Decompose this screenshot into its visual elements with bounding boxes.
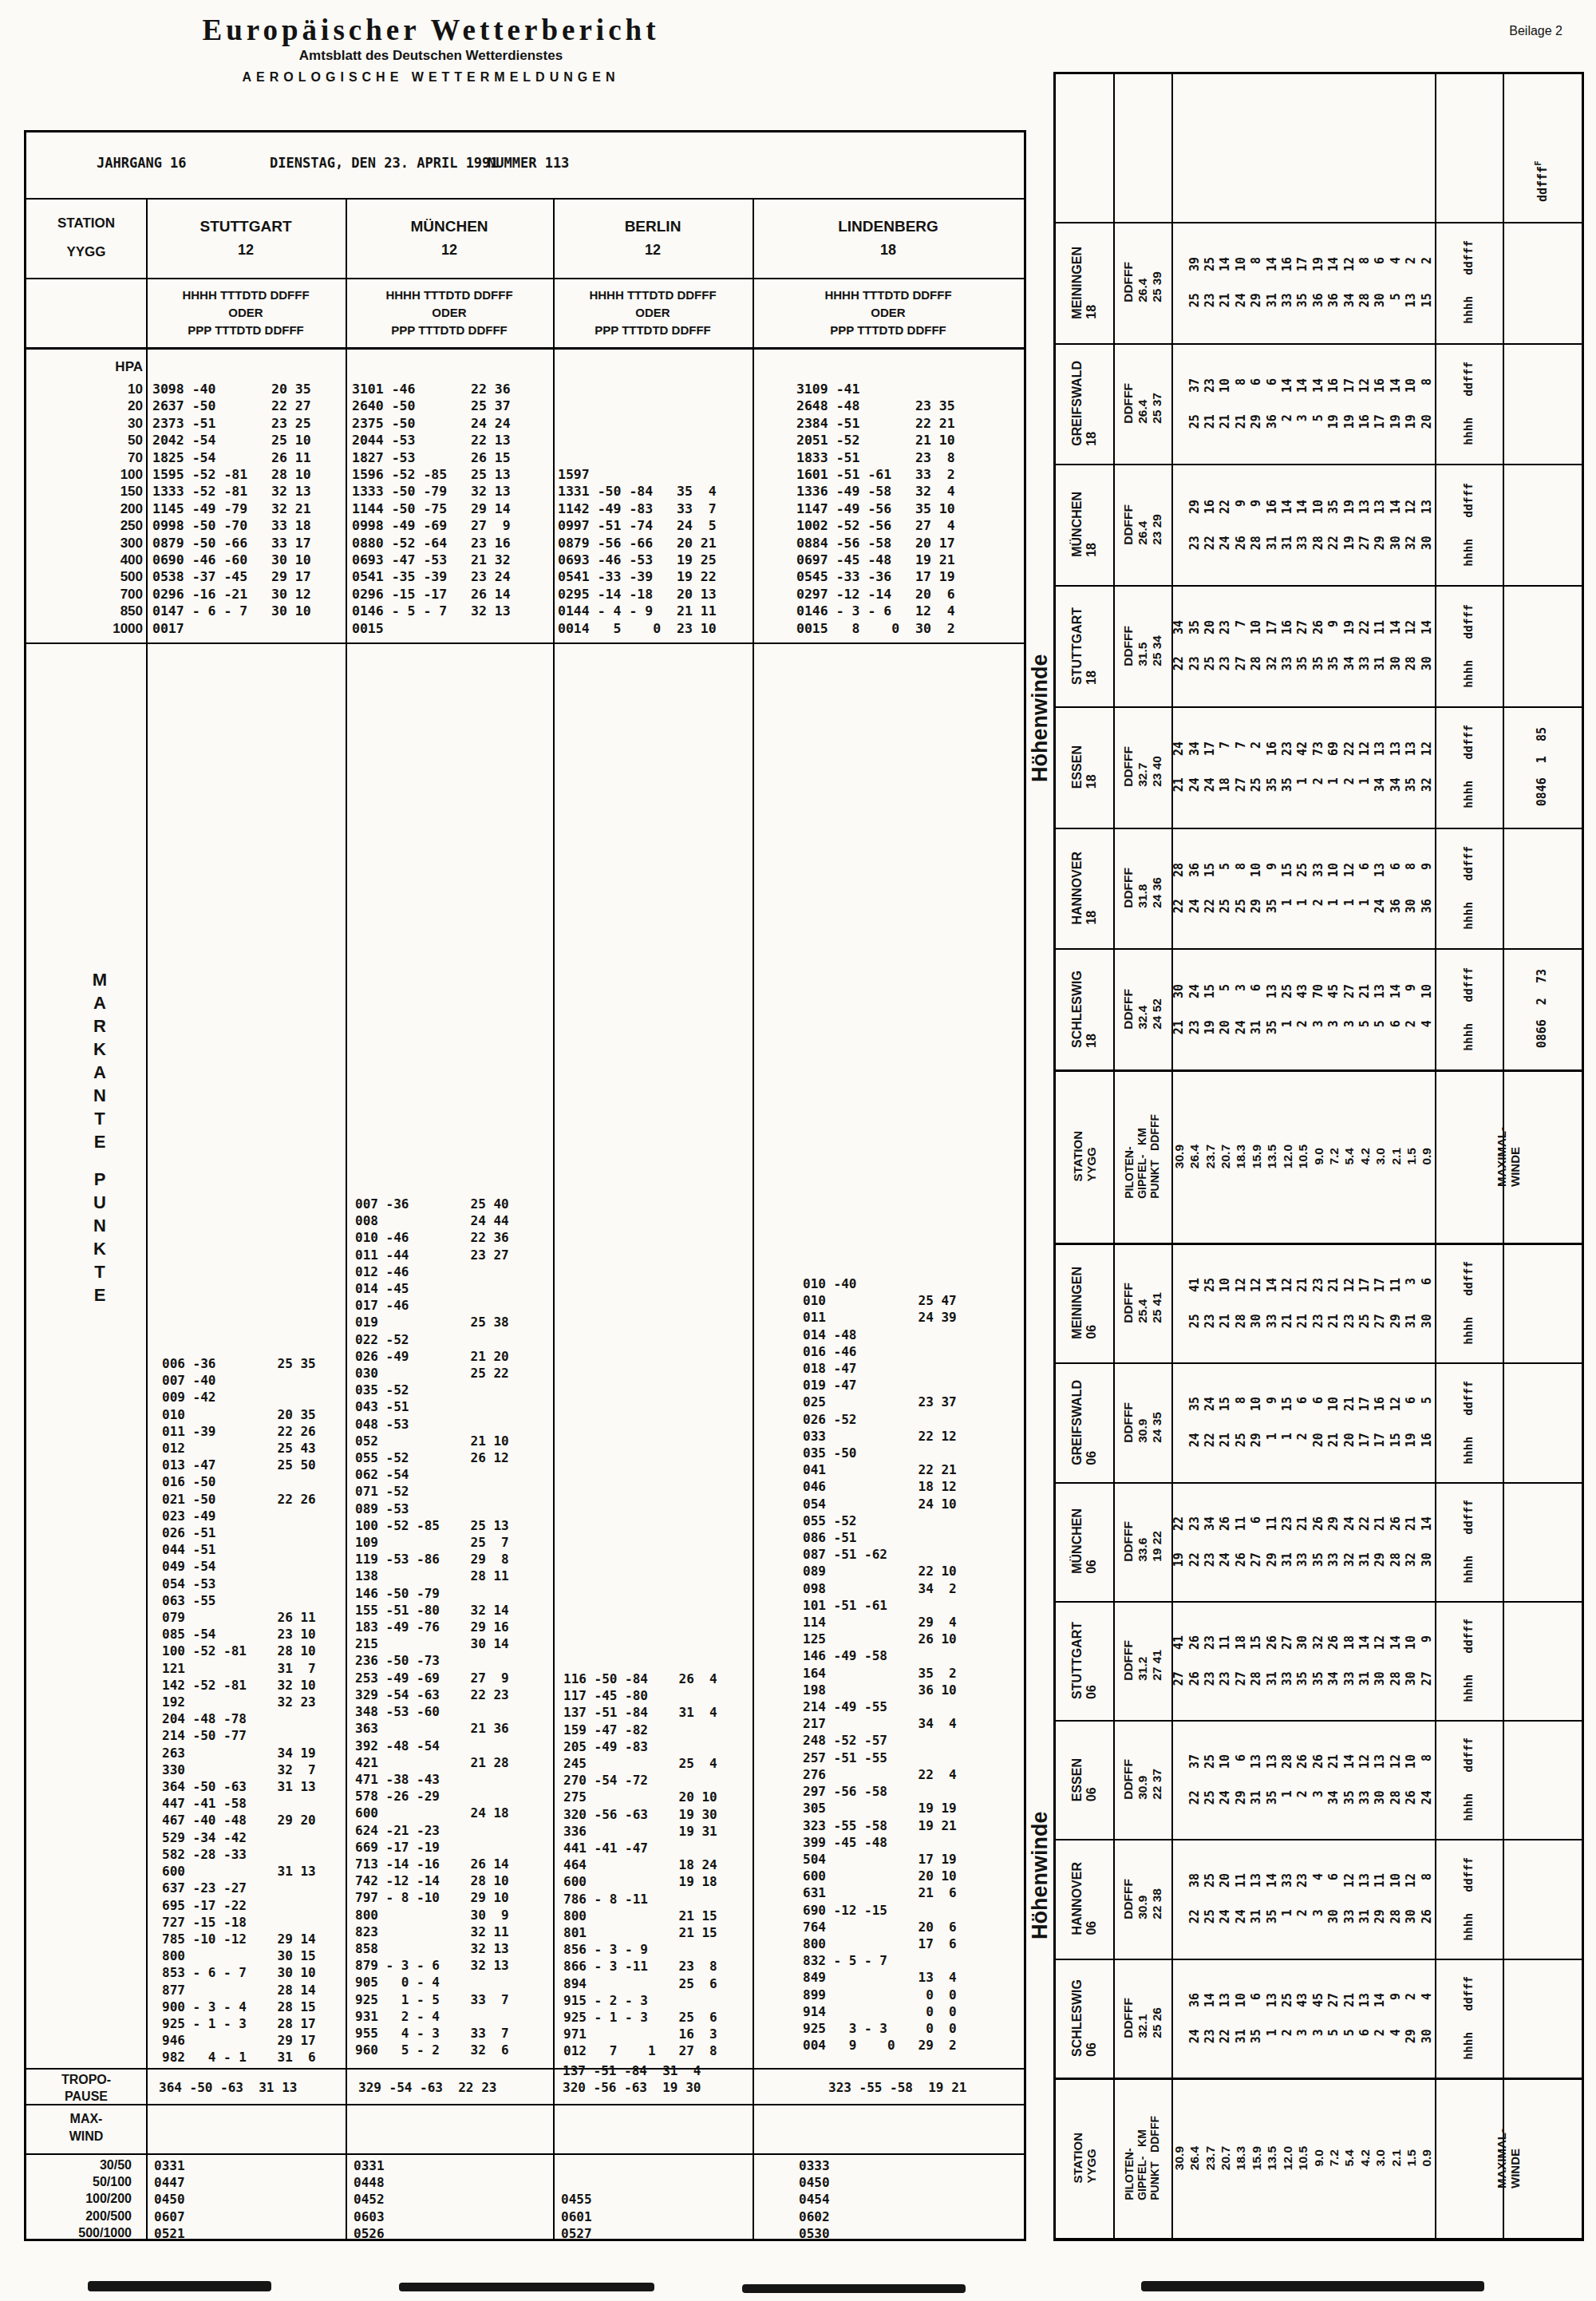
- max-wind-data-stuttgart: 0331 0447 0450 0607 0521: [154, 2157, 185, 2242]
- wind-pair-value: 25 8: [1235, 863, 1248, 913]
- hoehenwinde-label-top: Höhenwinde: [1028, 591, 1053, 782]
- wind-pair-value: 3 27: [1343, 984, 1357, 1034]
- wind-pair-value: 16 12: [1358, 378, 1372, 429]
- km-slot: 30.9: [1171, 2078, 1187, 2239]
- max-wind-label-line: MAX-: [26, 2110, 146, 2128]
- wind-pair-value: 21 8: [1235, 378, 1248, 429]
- wind-pair-slot: 2 23: [1295, 1839, 1310, 1958]
- wind-pair-value: 33 12: [1343, 1873, 1357, 1923]
- wind-pair-value: 2 33: [1312, 863, 1325, 913]
- markante-letter: N: [84, 1216, 116, 1239]
- wind-pair-value: 26 8: [1420, 1873, 1434, 1923]
- wind-pair-value: 31 23: [1281, 1516, 1294, 1567]
- wind-pair-value: 30 14: [1389, 620, 1403, 670]
- wind-pair-slot: 31 14: [1264, 222, 1279, 343]
- wind-pair-value: 26 10: [1404, 1754, 1418, 1805]
- column-header-line: HHHH TTTDTD DDFFF: [385, 287, 512, 304]
- table-rule: [346, 198, 347, 2239]
- wind-pair-slot: 34 26: [1326, 1601, 1341, 1720]
- wind-pairs-schleswig-06: 24 3623 1422 1331 1035 6 1 13 2 25 3 43 …: [1171, 1959, 1435, 2078]
- wind-station-label: STUTTGART06: [1070, 1622, 1100, 1699]
- wind-pair-value: 25 17: [1358, 1278, 1372, 1328]
- wind-pair-value: 24 8: [1420, 1754, 1434, 1805]
- table-rule: [26, 642, 1024, 644]
- wind-pair-slot: 3 45: [1311, 1959, 1326, 2078]
- wind-pair-value: 31 13: [1250, 1873, 1263, 1923]
- wind-pair-slot: 32 24: [1342, 1482, 1357, 1601]
- wind-pair-value: 36 6: [1389, 863, 1403, 913]
- station-name-lindenberg: LINDENBERG18: [753, 198, 1024, 278]
- wind-pair-slot: 23 23: [1218, 585, 1233, 706]
- wind-pair-slot: 24 36: [1187, 828, 1202, 949]
- wind-pair-slot: 31 6: [1249, 948, 1264, 1069]
- wind-pair-value: 30 13: [1420, 500, 1434, 550]
- station-yygg: 12: [441, 242, 457, 259]
- wind-pair-value: 34 19: [1343, 620, 1357, 670]
- wind-pair-slot: 21 21: [1326, 1243, 1341, 1362]
- wind-pair-value: 21 21: [1327, 1278, 1341, 1328]
- wind-pair-slot: 15 2: [1420, 222, 1435, 343]
- column-header-line: ODER: [635, 304, 670, 322]
- wind-pair-slot: 25 2: [1249, 706, 1264, 828]
- wind-pair-slot: 1 15: [1280, 1362, 1295, 1481]
- wind-pair-slot: 33 29: [1326, 1482, 1341, 1601]
- station-name-mnchen: MÜNCHEN12: [346, 198, 553, 278]
- wind-pair-value: 34 13: [1373, 741, 1387, 792]
- wind-station-label-line: HANNOVER: [1070, 1862, 1084, 1935]
- wind-pair-slot: 2 22: [1342, 706, 1357, 828]
- scan-smudge: [1141, 2281, 1484, 2291]
- wind-pair-slot: 6 13: [1357, 1959, 1373, 2078]
- weather-bulletin-page: Europäischer Wetterbericht Amtsblatt des…: [0, 0, 1596, 2301]
- wind-pair-value: 30 12: [1250, 1278, 1263, 1328]
- wind-pair-slot: 31 14: [1280, 464, 1295, 585]
- wind-pair-value: 35 13: [1266, 1754, 1279, 1805]
- km-slot: 30.9: [1171, 1069, 1187, 1243]
- wind-ddfff-header-line: 24 36: [1149, 868, 1163, 908]
- wind-pair-slot: 30 12: [1373, 1601, 1388, 1720]
- wind-ddfff-header-line: 27 41: [1149, 1640, 1163, 1681]
- wind-pair-value: 17 17: [1358, 1397, 1372, 1447]
- wind-pair-value: 19 22: [1172, 1516, 1186, 1567]
- wind-pair-slot: 35 13: [1404, 706, 1419, 828]
- wind-pair-slot: 24 11: [1234, 1839, 1249, 1958]
- wind-pair-value: 1 9: [1266, 1397, 1279, 1447]
- wind-ddfff-header: DDFFF26.425 39: [1121, 262, 1163, 302]
- wind-pair-value: 22 13: [1219, 1993, 1232, 2043]
- wind-pair-value: 28 12: [1389, 1754, 1403, 1805]
- wind-pair-value: 2 43: [1296, 984, 1310, 1034]
- section-label: AEROLOGISCHE WETTERMELDUNGEN: [0, 70, 862, 85]
- wind-pair-value: 20 6: [1312, 1397, 1325, 1447]
- wind-pair-value: 1 10: [1327, 863, 1341, 913]
- km-value: 0.9: [1420, 2149, 1434, 2167]
- wind-ddfff-essen-18: DDFFF32.723 40: [1113, 706, 1171, 828]
- hhhh-ddfff-label: hhhh ddfff: [1462, 1261, 1476, 1345]
- wind-pair-slot: 31 3: [1404, 1243, 1419, 1362]
- wind-pair-slot: 2 9: [1404, 948, 1419, 1069]
- max-wind-data-mnchen: 0331 0448 0452 0603 0526: [354, 2157, 385, 2242]
- wind-pair-slot: 31 22: [1357, 1482, 1373, 1601]
- km-slot: 18.3: [1234, 1069, 1249, 1243]
- wind-pair-slot: 22 13: [1218, 1959, 1233, 2078]
- wind-pair-value: 35 17: [1296, 257, 1310, 307]
- wind-pair-slot: 26 10: [1404, 1720, 1419, 1839]
- wind-station-stuttgart-18: STUTTGART18: [1056, 585, 1113, 706]
- wind-station-label-line: 18: [1084, 361, 1099, 446]
- wind-ddfff-header-line: 30.9: [1136, 1759, 1150, 1800]
- wind-pair-slot: 1 25: [1280, 948, 1295, 1069]
- wind-pair-value: 29 8: [1250, 257, 1263, 307]
- wind-pair-value: 5 27: [1327, 1993, 1341, 2043]
- wind-pair-value: 21 10: [1327, 1397, 1341, 1447]
- wind-pair-value: 25 41: [1188, 1278, 1202, 1328]
- tropopause-label: TROPO-PAUSE: [26, 2071, 146, 2105]
- km-value: 23.7: [1203, 1145, 1218, 1168]
- wind-pair-slot: 36 6: [1389, 828, 1404, 949]
- wind-station-label: GREIFSWALD18: [1070, 361, 1100, 446]
- wind-pair-value: 29 2: [1404, 1993, 1418, 2043]
- wind-pair-slot: 3 27: [1342, 948, 1357, 1069]
- wind-pair-slot: 33 22: [1357, 585, 1373, 706]
- wind-collabels-greifswald-06: hhhh ddfff: [1435, 1362, 1503, 1481]
- wind-ddfff-greifswald-06: DDFFF30.924 35: [1113, 1362, 1171, 1481]
- wind-pair-slot: 31 16: [1264, 464, 1279, 585]
- wind-pair-value: 19 14: [1389, 378, 1403, 429]
- wind-pair-slot: 31 10: [1234, 1959, 1249, 2078]
- wind-pair-value: 31 11: [1373, 620, 1387, 670]
- wind-pair-slot: 24 22: [1218, 464, 1233, 585]
- wind-pair-value: 20 5: [1219, 984, 1232, 1034]
- wind-pair-value: 1 12: [1358, 741, 1372, 792]
- wind-pair-slot: [1171, 343, 1187, 465]
- wind-pair-slot: 35 6: [1249, 1959, 1264, 2078]
- wind-pair-value: 23 23: [1219, 620, 1232, 670]
- wind-pairs-mnchen-18: 23 2922 1624 2226 928 931 1631 1433 1428…: [1171, 464, 1435, 585]
- wind-station-label: ESSEN18: [1070, 745, 1100, 789]
- km-slot: 4.2: [1357, 1069, 1373, 1243]
- wind-pair-value: 27 7: [1235, 620, 1248, 670]
- wind-station-label-line: 06: [1084, 1380, 1099, 1465]
- wind-pair-value: 4 10: [1420, 984, 1434, 1034]
- wind-pair-value: 27 18: [1235, 1635, 1248, 1686]
- km-slot: 2.1: [1389, 1069, 1404, 1243]
- wind-ddfff-header: DDFFF25.425 41: [1121, 1283, 1163, 1323]
- station-name-label: MÜNCHEN: [410, 218, 488, 235]
- km-value: 1.5: [1404, 2149, 1419, 2167]
- hhhh-ddfff-label: hhhh ddfff: [1462, 1976, 1476, 2060]
- wind-pair-slot: 35 13: [1264, 948, 1279, 1069]
- wind-pair-value: 29 11: [1266, 1516, 1279, 1567]
- wind-station-label-line: 06: [1084, 1508, 1099, 1574]
- wind-pair-value: 2 22: [1343, 741, 1357, 792]
- wind-ddfff-header-line: DDFFF: [1121, 868, 1136, 908]
- wind-pair-slot: 31 13: [1249, 1839, 1264, 1958]
- wind-pair-value: 35 26: [1312, 1516, 1325, 1567]
- wind-station-stuttgart-06: STUTTGART06: [1056, 1601, 1113, 1720]
- wind-pair-value: 33 16: [1281, 620, 1294, 670]
- wind-pair-value: 30 14: [1420, 1516, 1434, 1567]
- wind-pair-slot: 23 11: [1218, 1601, 1233, 1720]
- wind-station-label: STUTTGART18: [1070, 607, 1100, 685]
- wind-pair-value: 28 12: [1235, 1278, 1248, 1328]
- km-slot: 20.7: [1218, 2078, 1233, 2239]
- wind-pair-slot: 2 33: [1311, 828, 1326, 949]
- wind-pair-slot: 28 15: [1249, 1601, 1264, 1720]
- wind-pair-value: 32 12: [1420, 741, 1434, 792]
- wind-pair-value: 35 30: [1296, 1635, 1310, 1686]
- wind-pair-value: 23 25: [1203, 257, 1217, 307]
- wind-pair-slot: 21 23: [1203, 343, 1218, 465]
- table-rule: [26, 2068, 1024, 2070]
- wind-ddfff-header-line: DDFFF: [1121, 1759, 1136, 1800]
- wind-pair-value: 1 12: [1343, 863, 1357, 913]
- wind-pair-value: 21 30: [1172, 984, 1186, 1034]
- wind-pair-value: 21 10: [1219, 1278, 1232, 1328]
- km-slot: 12.0: [1280, 1069, 1295, 1243]
- column-header-line: PPP TTTDTD DDFFF: [391, 322, 508, 339]
- wind-pair-slot: [1171, 222, 1187, 343]
- markante-punkte-label: MARKANTEPUNKTE: [84, 970, 116, 1308]
- wind-pair-slot: 1 9: [1264, 1362, 1279, 1481]
- wind-pair-value: 4 9: [1389, 1993, 1403, 2043]
- hpa-data-berlin: 1597 1331 -50 -84 35 4 1142 -49 -83 33 7…: [558, 381, 717, 637]
- wind-pair-slot: 35 17: [1295, 222, 1310, 343]
- wind-ddfff-header: DDFFF32.125 26: [1121, 1998, 1163, 2038]
- wind-pair-value: 1 15: [1281, 1397, 1294, 1447]
- wind-ddfff-hannover-06: DDFFF30.922 38: [1113, 1839, 1171, 1958]
- wind-pair-value: 15 12: [1389, 1397, 1403, 1447]
- station-name-label: STUTTGART: [199, 218, 291, 235]
- wind-pair-value: 24 34: [1188, 741, 1202, 792]
- wind-ddfff-header-line: 24 52: [1149, 989, 1163, 1030]
- wind-pair-value: 30 14: [1389, 500, 1403, 550]
- wind-collabels-mnchen-18: hhhh ddfff: [1435, 464, 1503, 585]
- wind-pair-slot: 22 28: [1171, 828, 1187, 949]
- wind-station-label-line: 18: [1084, 745, 1099, 789]
- panel-header-station-label-line: STATION: [1071, 1131, 1084, 1182]
- km-value: 3.0: [1373, 2149, 1388, 2167]
- wind-pair-value: 32 21: [1404, 1516, 1418, 1567]
- wind-pair-slot: 34 19: [1342, 585, 1357, 706]
- wind-pair-slot: 2 14: [1280, 343, 1295, 465]
- wind-pairs-meiningen-18: 25 3923 2521 1424 1029 831 1433 1635 173…: [1171, 222, 1435, 343]
- wind-pair-slot: 35 27: [1295, 585, 1310, 706]
- wind-pair-slot: 26 8: [1420, 1839, 1435, 1958]
- wind-pair-value: 1 33: [1281, 1873, 1294, 1923]
- wind-pair-value: 25 25: [1203, 1754, 1217, 1805]
- wind-station-label-line: ESSEN: [1070, 745, 1084, 789]
- wind-pair-slot: 24 17: [1203, 706, 1218, 828]
- markante-letter: A: [84, 1062, 116, 1085]
- wind-pair-slot: 19 22: [1171, 1482, 1187, 1601]
- station-name-berlin: BERLIN12: [553, 198, 753, 278]
- wind-annotation-value: 0846 1 85: [1535, 727, 1549, 806]
- km-slot: 9.0: [1311, 2078, 1326, 2239]
- hhhh-ddfff-label: hhhh ddfff: [1462, 1500, 1476, 1583]
- wind-ddfff-header-line: 33.6: [1136, 1521, 1150, 1562]
- km-value: 4.2: [1358, 2149, 1373, 2167]
- wind-pair-value: 5 21: [1343, 1993, 1357, 2043]
- wind-pair-slot: 36 9: [1420, 828, 1435, 949]
- wind-pair-value: 31 13: [1358, 1873, 1372, 1923]
- wind-annotation-schleswig-18: 0866 2 73: [1503, 948, 1582, 1069]
- wind-pair-value: 28 15: [1250, 1635, 1263, 1686]
- wind-pair-value: 6 13: [1358, 1993, 1372, 2043]
- markante-letter: T: [84, 1262, 116, 1285]
- tropopause-label-line: PAUSE: [26, 2088, 146, 2105]
- hhhh-ddfff-label: hhhh ddfff: [1462, 846, 1476, 930]
- wind-pair-value: 2 26: [1296, 1754, 1310, 1805]
- wind-pair-value: 23 12: [1343, 1278, 1357, 1328]
- page-title: Europäischer Wetterbericht: [0, 13, 862, 47]
- wind-pair-slot: 33 14: [1295, 464, 1310, 585]
- wind-station-essen-18: ESSEN18: [1056, 706, 1113, 828]
- wind-pair-value: 32 17: [1266, 620, 1279, 670]
- wind-pair-value: 27 7: [1235, 741, 1248, 792]
- wind-pair-slot: 25 39: [1187, 222, 1202, 343]
- wind-collabels-stuttgart-06: hhhh ddfff: [1435, 1601, 1503, 1720]
- wind-station-meiningen-18: MEININGEN18: [1056, 222, 1113, 343]
- wind-pair-slot: 19 6: [1404, 1362, 1419, 1481]
- km-value: 26.4: [1187, 1145, 1202, 1168]
- wind-station-label-line: HANNOVER: [1070, 852, 1084, 925]
- station-name-label: LINDENBERG: [838, 218, 938, 235]
- wind-pair-slot: 28 10: [1389, 1839, 1404, 1958]
- wind-pair-value: 5 21: [1358, 984, 1372, 1034]
- wind-ddfff-header-line: DDFFF: [1121, 383, 1136, 424]
- wind-pair-slot: 30 4: [1420, 1959, 1435, 2078]
- wind-pair-slot: 1 33: [1280, 1839, 1295, 1958]
- wind-pair-value: 2 6: [1296, 1397, 1310, 1447]
- wind-pair-slot: 35 23: [1280, 706, 1295, 828]
- wind-pair-value: 36 9: [1420, 863, 1434, 913]
- pressure-scale: 10 20 30 50 70 100 150 200 250 300 400 5…: [26, 381, 143, 637]
- wind-pair-value: 35 14: [1266, 1873, 1279, 1923]
- wind-pair-value: 28 12: [1404, 620, 1418, 670]
- wind-pair-value: 17 16: [1373, 378, 1387, 429]
- wind-pair-value: 27 6: [1250, 1516, 1263, 1567]
- wind-ddfff-header-line: 25 34: [1149, 626, 1163, 666]
- wind-station-label-line: MÜNCHEN: [1070, 1508, 1084, 1574]
- wind-pair-value: 2 23: [1296, 1873, 1310, 1923]
- wind-pair-value: 29 6: [1235, 1754, 1248, 1805]
- km-slot: 3.0: [1373, 1069, 1388, 1243]
- wind-pair-slot: 24 8: [1420, 1720, 1435, 1839]
- wind-pair-value: 30 12: [1373, 1635, 1387, 1686]
- wind-pair-slot: 25 20: [1203, 585, 1218, 706]
- wind-pair-slot: 6 14: [1389, 948, 1404, 1069]
- wind-ddfff-mnchen-18: DDFFF26.423 29: [1113, 464, 1171, 585]
- wind-ddfff-schleswig-06: DDFFF32.125 26: [1113, 1959, 1171, 2078]
- wind-pair-slot: 35 16: [1264, 706, 1279, 828]
- wind-pair-slot: 2 14: [1373, 1959, 1388, 2078]
- wind-ddfff-header: DDFFF26.425 37: [1121, 383, 1163, 424]
- wind-pairs-schleswig-18: 21 3023 2419 1520 524 331 635 13 1 25 2 …: [1171, 948, 1435, 1069]
- km-slot: 26.4: [1187, 2078, 1202, 2239]
- wind-ddfff-hannover-18: DDFFF31.824 36: [1113, 828, 1171, 949]
- wind-station-label-line: STUTTGART: [1070, 1622, 1084, 1699]
- wind-pair-value: 27 13: [1358, 500, 1372, 550]
- wind-pair-value: 22 28: [1172, 863, 1186, 913]
- wind-ddfff-header: DDFFF33.619 22: [1121, 1521, 1163, 1562]
- wind-ddfff-header: DDFFF31.824 36: [1121, 868, 1163, 908]
- km-slot: 20.7: [1218, 1069, 1233, 1243]
- maximal-winde-label-line: MAXIMAL-: [1495, 2129, 1508, 2188]
- km-slot: 1.5: [1404, 1069, 1419, 1243]
- wind-pair-value: 28 9: [1250, 500, 1263, 550]
- wind-pair-slot: 31 13: [1249, 1720, 1264, 1839]
- wind-pair-slot: 28 9: [1249, 464, 1264, 585]
- wind-pair-value: 35 32: [1312, 1635, 1325, 1686]
- wind-pair-value: 21 12: [1281, 1278, 1294, 1328]
- wind-pair-value: 24 3: [1235, 984, 1248, 1034]
- wind-pair-slot: [1171, 1839, 1187, 1958]
- wind-pair-slot: 19 15: [1203, 948, 1218, 1069]
- wind-pair-value: 3 26: [1312, 1754, 1325, 1805]
- wind-pair-slot: 31 11: [1373, 585, 1388, 706]
- wind-pair-value: 30 8: [1404, 863, 1418, 913]
- wind-ddfff-header-line: 26.4: [1136, 262, 1150, 302]
- wind-ddfff-header-line: DDFFF: [1121, 1283, 1136, 1323]
- column-header-line: PPP TTTDTD DDFFF: [595, 322, 711, 339]
- wind-ddfff-header-line: 25 37: [1149, 383, 1163, 424]
- wind-pair-value: 6 14: [1389, 984, 1403, 1034]
- wind-ddfff-header-line: 26.4: [1136, 504, 1150, 545]
- panel-header-piloten-label-line: GIPFEL- KM: [1136, 2116, 1148, 2200]
- wind-pair-slot: 35 30: [1295, 1601, 1310, 1720]
- wind-pair-value: 22 23: [1188, 1516, 1202, 1567]
- column-header-mnchen: HHHH TTTDTD DDFFFODERPPP TTTDTD DDFFF: [346, 278, 553, 347]
- wind-pair-slot: 28 12: [1389, 1720, 1404, 1839]
- wind-collabels-hannover-06: hhhh ddfff: [1435, 1839, 1503, 1958]
- panel-header-station-label-line: YYGG: [1084, 2133, 1098, 2184]
- wind-pair-value: 5 13: [1373, 984, 1387, 1034]
- wind-pair-value: 24 36: [1188, 863, 1202, 913]
- km-value: 2.1: [1389, 2149, 1404, 2167]
- wind-pair-slot: 36 14: [1326, 222, 1341, 343]
- km-value: 9.0: [1312, 1148, 1326, 1165]
- wind-pair-value: 34 26: [1327, 1635, 1341, 1686]
- wind-pair-slot: 2 26: [1295, 1720, 1310, 1839]
- wind-pair-slot: 26 11: [1234, 1482, 1249, 1601]
- wind-pair-slot: 30 14: [1389, 585, 1404, 706]
- hhhh-ddfff-label: hhhh ddfff: [1462, 1857, 1476, 1941]
- wind-collabels-schleswig-18: hhhh ddfff: [1435, 948, 1503, 1069]
- wind-pair-slot: 27 17: [1373, 1243, 1388, 1362]
- wind-pair-value: 24 26: [1219, 1516, 1232, 1567]
- km-value: 18.3: [1234, 1145, 1248, 1168]
- wind-station-schleswig-06: SCHLESWIG06: [1056, 1959, 1113, 2078]
- km-value: 4.2: [1358, 1148, 1373, 1165]
- wind-pair-slot: 33 18: [1342, 1601, 1357, 1720]
- wind-pair-value: 33 16: [1281, 257, 1294, 307]
- wind-pair-slot: 26 9: [1234, 464, 1249, 585]
- wind-pair-value: 30 4: [1420, 1993, 1434, 2043]
- wind-pair-value: 1 25: [1281, 984, 1294, 1034]
- wind-pair-value: 20 21: [1343, 1397, 1357, 1447]
- maximal-winde-label-line: MAXIMAL-: [1495, 1127, 1508, 1187]
- panel-header-station: STATIONYYGG: [1056, 1069, 1113, 1243]
- wind-ddfff-header-line: DDFFF: [1121, 1521, 1136, 1562]
- hhhh-ddfff-label: hhhh ddfff: [1462, 604, 1476, 688]
- wind-pairs-greifswald-06: 24 3522 2421 1525 829 10 1 9 1 15 2 620 …: [1171, 1362, 1435, 1481]
- wind-station-label-line: SCHLESWIG: [1070, 1979, 1084, 2057]
- wind-pair-value: 29 13: [1373, 500, 1387, 550]
- wind-pair-slot: 33 27: [1280, 1601, 1295, 1720]
- page-subtitle: Amtsblatt des Deutschen Wetterdienstes: [0, 48, 862, 64]
- km-value: 9.0: [1312, 2149, 1326, 2167]
